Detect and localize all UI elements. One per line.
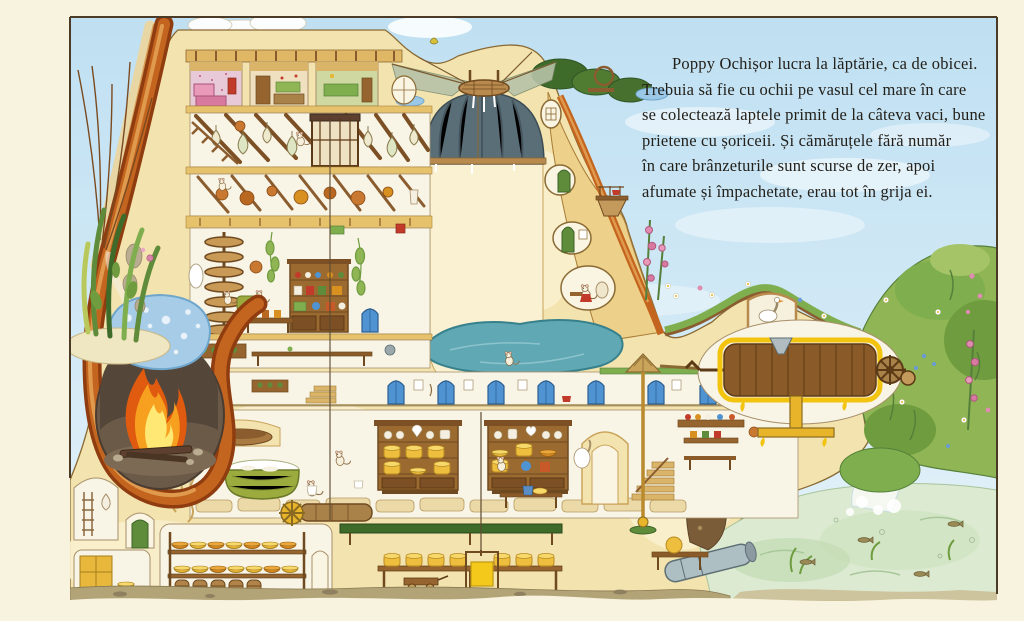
bedroom-green <box>316 62 378 106</box>
cliff-window-room <box>561 266 615 310</box>
hanging-pan-2 <box>385 345 395 355</box>
copper-pots-room <box>190 174 430 216</box>
cheese-dresser-1 <box>374 420 462 494</box>
cliff-window-green-door-1 <box>545 165 575 195</box>
cliff-window-lattice <box>541 100 561 128</box>
vat-rim <box>422 158 546 164</box>
kitchen-dresser <box>287 259 351 332</box>
bedroom-pink <box>190 62 242 106</box>
curd-tub <box>225 460 299 499</box>
green-cellar-door <box>132 520 148 548</box>
story-text: Poppy Ochișor lucra la lăptărie, ca de o… <box>642 51 1020 204</box>
hanging-pan <box>250 261 262 273</box>
mouse-red-coat <box>562 396 571 402</box>
bedroom-tan <box>250 62 308 106</box>
cliff-window-green-door-2 <box>553 222 591 254</box>
mouse-red-dress <box>580 294 592 302</box>
dairy-floor <box>190 410 798 518</box>
kitchen-door <box>362 308 378 332</box>
dairy-arch <box>582 432 628 504</box>
cheese-drying-room <box>190 113 430 167</box>
loft-window <box>392 76 416 104</box>
book-page: Poppy Ochișor lucra la lăptărie, ca de o… <box>0 0 1024 621</box>
surface-pond <box>424 320 623 374</box>
mouse-blue-dress <box>523 486 533 495</box>
mouse-apron <box>307 486 317 495</box>
wall-mirror <box>189 264 203 288</box>
